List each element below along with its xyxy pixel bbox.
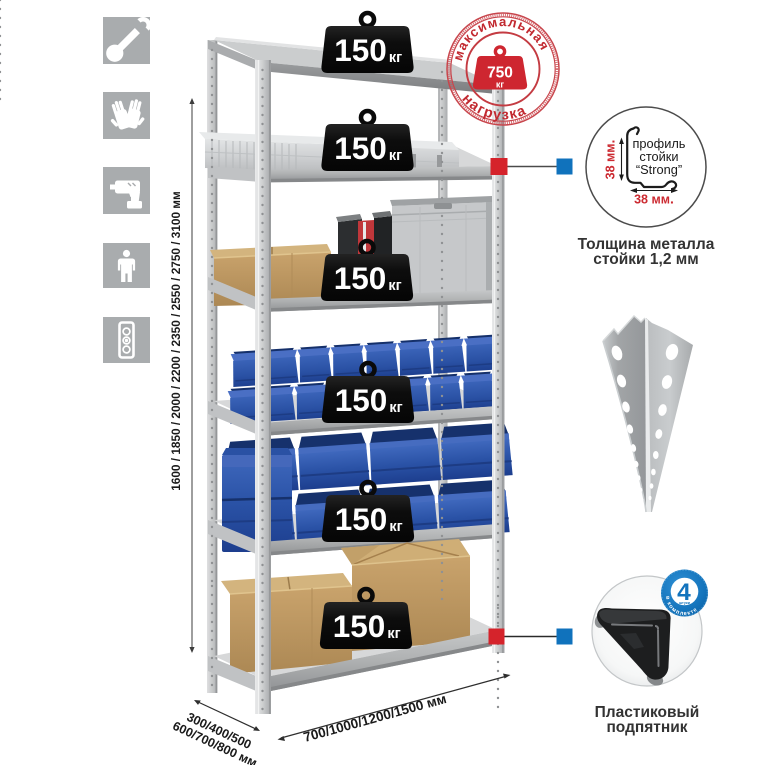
svg-text:стойки 1,2 мм: стойки 1,2 мм <box>593 251 698 268</box>
svg-text:подпятник: подпятник <box>606 719 687 736</box>
svg-text:700/1000/1200/1500 мм: 700/1000/1200/1500 мм <box>302 691 448 745</box>
svg-text:38 мм.: 38 мм. <box>602 140 618 180</box>
svg-text:кг: кг <box>496 80 505 90</box>
svg-text:штуки: штуки <box>679 601 690 605</box>
svg-text:1600 / 1850 / 2000 / 2200 / 23: 1600 / 1850 / 2000 / 2200 / 2350 / 2550 … <box>169 191 183 491</box>
svg-text:38 мм.: 38 мм. <box>634 191 674 207</box>
svg-text:“Strong”: “Strong” <box>636 162 682 177</box>
